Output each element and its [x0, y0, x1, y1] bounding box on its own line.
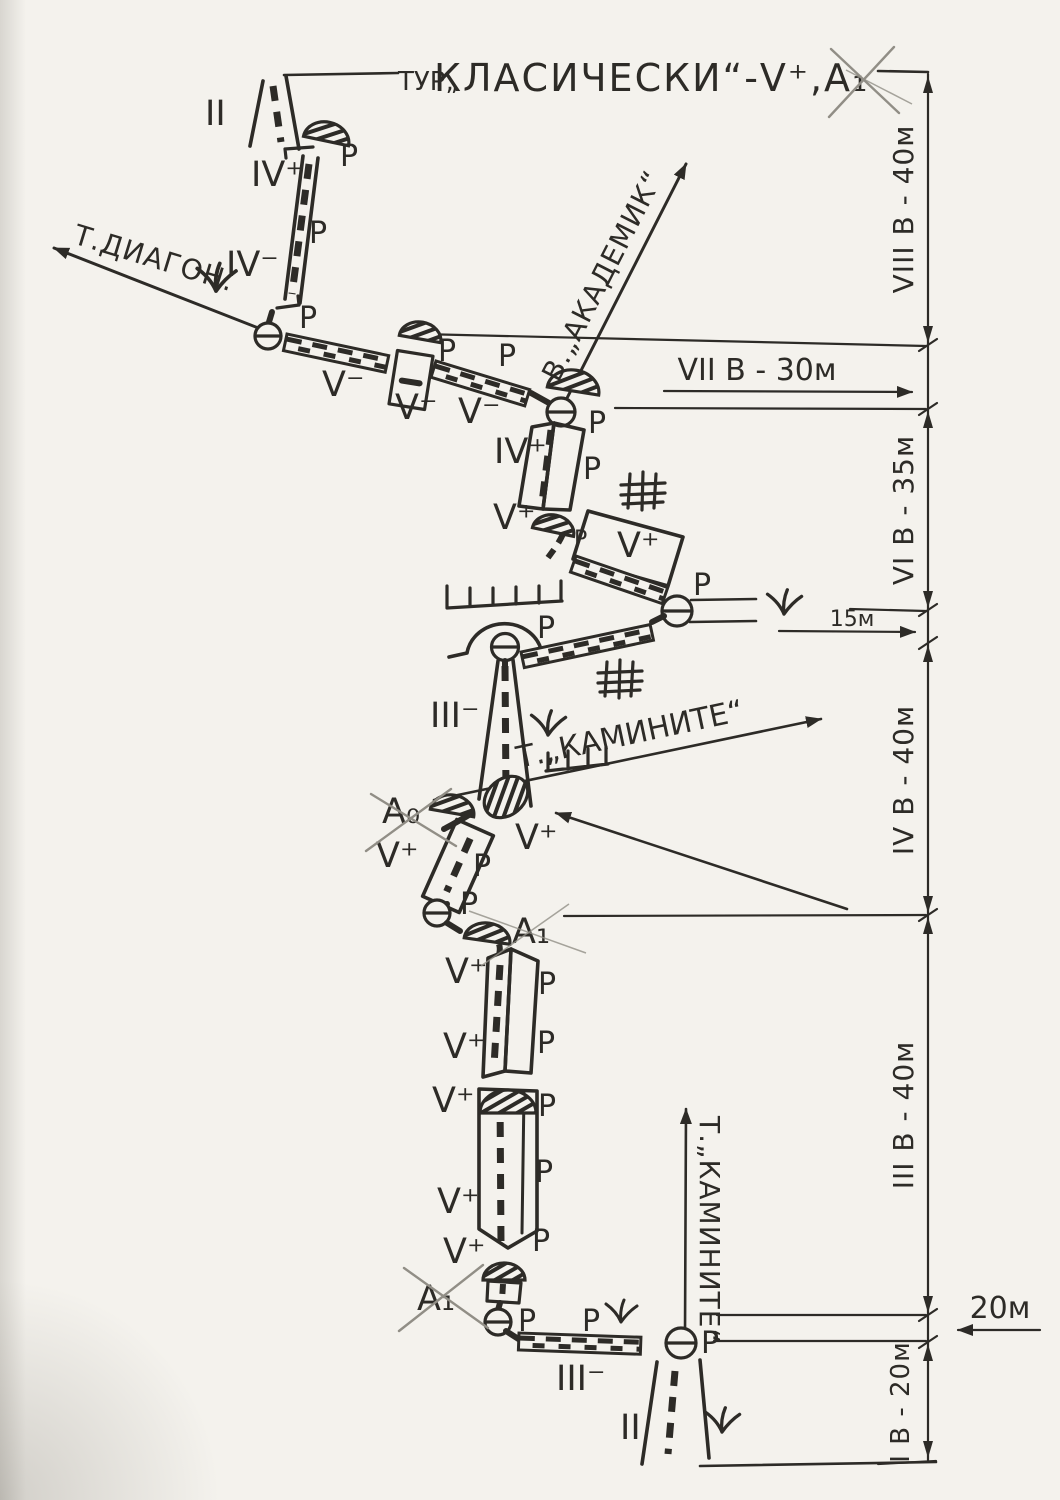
grass-symbol: [706, 1408, 740, 1432]
dimension-label-pitch3: III В - 40м: [887, 1041, 920, 1190]
crack-bracket-bottom: [277, 296, 299, 308]
piton-label: P: [498, 339, 516, 374]
paper-edge-shading: [0, 0, 26, 1500]
leader-lines: [420, 334, 926, 1341]
dimension-label-pitch6: VI В - 35м: [887, 435, 920, 585]
bush-symbol: [621, 472, 665, 510]
chimney-top: [250, 76, 299, 149]
direction-label-kaminite-bottom: Т.„КАМИНИТЕ“: [693, 1115, 726, 1344]
belay-station-7: [666, 1328, 696, 1358]
grade-label-v-plus-9: V⁺: [443, 1232, 485, 1272]
grade-label-iii-minus-2: III⁻: [556, 1359, 605, 1399]
dimension-lines: [284, 71, 1040, 1466]
dimension-label-pitch1: I В - 20м: [886, 1341, 916, 1462]
grade-label-v-plus-8: V⁺: [437, 1182, 479, 1222]
chimney-bottom: [642, 1360, 709, 1464]
roof-overhang-4: [532, 511, 577, 536]
chimney-pointer-arrow: [556, 813, 847, 909]
kaminite-bottom-arrow: [685, 1109, 686, 1334]
route-topo-drawing: ТУР„ КЛАСИЧЕСКИ“-V⁺,А₁ II IV⁺ IV⁻ V⁻ V⁻ …: [0, 0, 1060, 1500]
grade-label-v-plus-2: V⁺: [617, 526, 659, 566]
piton-label: P: [537, 1026, 555, 1061]
grade-label-v-minus-2: V⁻: [395, 388, 437, 428]
grade-label-ii-top: II: [205, 94, 226, 134]
block-bottom: [487, 1281, 521, 1303]
piton-label: P: [460, 887, 478, 922]
labels: ТУР„ КЛАСИЧЕСКИ“-V⁺,А₁ II IV⁺ IV⁻ V⁻ V⁻ …: [69, 56, 1030, 1463]
roof-overhang-8: [483, 1263, 525, 1280]
grade-label-v-plus-1: V⁺: [493, 498, 535, 538]
bush-symbol: [598, 660, 642, 698]
piton-label: P: [518, 1304, 536, 1339]
belay-station-3: [662, 596, 692, 626]
piton-label: P: [340, 139, 358, 174]
dimension-label-pitch4: IV В - 40м: [887, 705, 920, 855]
belay-station-1: [255, 323, 281, 349]
piton-label: P: [309, 216, 327, 251]
pitch7-arrow: [664, 391, 912, 392]
roof-overhang-2: [399, 319, 443, 343]
grade-label-v-plus-7: V⁺: [432, 1081, 474, 1121]
dimension-label-traverse15: 15м: [830, 607, 875, 632]
grass-symbol: [768, 590, 802, 614]
dimension-label-pitch8: VIII В - 40м: [887, 125, 920, 294]
grade-label-ii-bottom: II: [620, 1408, 641, 1448]
grade-label-v-minus-1: V⁻: [322, 365, 364, 405]
dimension-label-traverse20: 20м: [970, 1291, 1031, 1326]
grade-label-v-plus-4: V⁺: [376, 836, 418, 876]
piton-label: P: [588, 406, 606, 441]
route-title: КЛАСИЧЕСКИ“-V⁺,А₁: [434, 56, 869, 100]
grade-label-v-minus-3: V⁻: [458, 392, 500, 432]
title-connector-line: [878, 71, 928, 72]
piton-label: P: [537, 611, 555, 646]
dimension-label-pitch7: VII В - 30м: [677, 353, 836, 388]
dihedral-v-plus: [483, 949, 538, 1077]
piton-label: P: [299, 301, 317, 336]
roof-overhang-7: [480, 1090, 536, 1113]
crack-band-5: [518, 1333, 641, 1354]
piton-label: P: [693, 568, 711, 603]
grade-label-v-plus-6: V⁺: [443, 1027, 485, 1067]
ledge-symbol-1: [447, 581, 562, 608]
title-connector-line-left: [284, 73, 398, 75]
grade-label-iv-plus-top: IV⁺: [251, 155, 304, 195]
paper-corner-shading: [0, 1280, 220, 1500]
grade-label-a1-mid: А₁: [512, 912, 550, 952]
piton-label: P: [535, 1155, 553, 1190]
piton-label: P: [532, 1224, 550, 1259]
route-topo-page: ТУР„ КЛАСИЧЕСКИ“-V⁺,А₁ II IV⁺ IV⁻ V⁻ V⁻ …: [0, 0, 1060, 1500]
piton-label: P: [473, 849, 491, 884]
piton-label: P: [582, 1304, 600, 1339]
piton-label: P: [538, 967, 556, 1002]
grass-symbol: [606, 1300, 637, 1322]
grade-label-iii-minus-1: III⁻: [430, 696, 479, 736]
belay-station-4: [492, 634, 519, 661]
direction-label-akademik: В.„АКАДЕМИК“: [535, 165, 670, 387]
grade-label-v-plus-3: V⁺: [515, 818, 557, 858]
piton-label: P: [438, 334, 456, 369]
piton-label: P: [583, 452, 601, 487]
direction-label-kaminite-mid: Т.„КАМИНИТЕ“: [512, 694, 747, 777]
grade-label-v-plus-5: V⁺: [445, 952, 487, 992]
piton-label: P: [574, 527, 587, 552]
grade-label-iv-plus-mid: IV⁺: [494, 432, 547, 472]
piton-label: P: [538, 1089, 556, 1124]
